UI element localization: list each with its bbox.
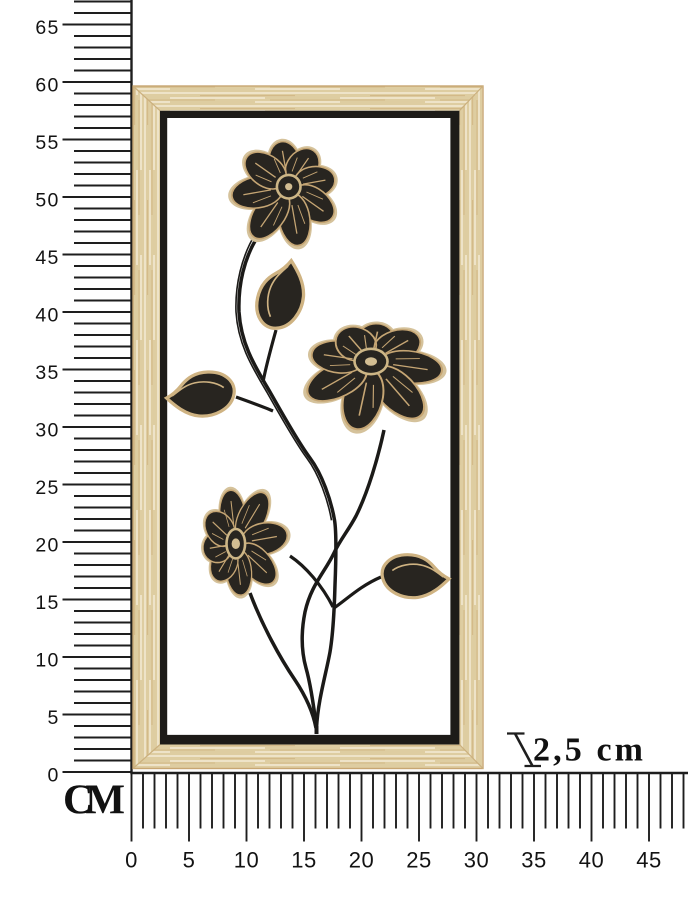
svg-text:45: 45 xyxy=(35,247,59,269)
svg-text:0: 0 xyxy=(125,848,138,873)
svg-text:15: 15 xyxy=(35,592,59,614)
svg-text:40: 40 xyxy=(35,304,59,326)
svg-text:65: 65 xyxy=(35,17,59,39)
svg-text:15: 15 xyxy=(291,848,316,873)
svg-text:35: 35 xyxy=(35,362,59,384)
svg-text:20: 20 xyxy=(349,848,374,873)
svg-text:0: 0 xyxy=(47,764,59,786)
svg-text:55: 55 xyxy=(35,132,59,154)
svg-text:50: 50 xyxy=(35,189,59,211)
svg-text:10: 10 xyxy=(35,649,59,671)
svg-text:30: 30 xyxy=(464,848,489,873)
svg-text:20: 20 xyxy=(35,534,59,556)
svg-text:5: 5 xyxy=(47,707,59,729)
svg-text:5: 5 xyxy=(183,848,196,873)
svg-text:25: 25 xyxy=(406,848,431,873)
svg-text:30: 30 xyxy=(35,419,59,441)
svg-text:25: 25 xyxy=(35,477,59,499)
svg-text:45: 45 xyxy=(636,848,661,873)
svg-text:10: 10 xyxy=(234,848,259,873)
svg-text:60: 60 xyxy=(35,74,59,96)
svg-text:CM: CM xyxy=(63,778,125,824)
svg-text:2,5 cm: 2,5 cm xyxy=(533,732,643,769)
svg-text:35: 35 xyxy=(521,848,546,873)
svg-text:40: 40 xyxy=(579,848,604,873)
